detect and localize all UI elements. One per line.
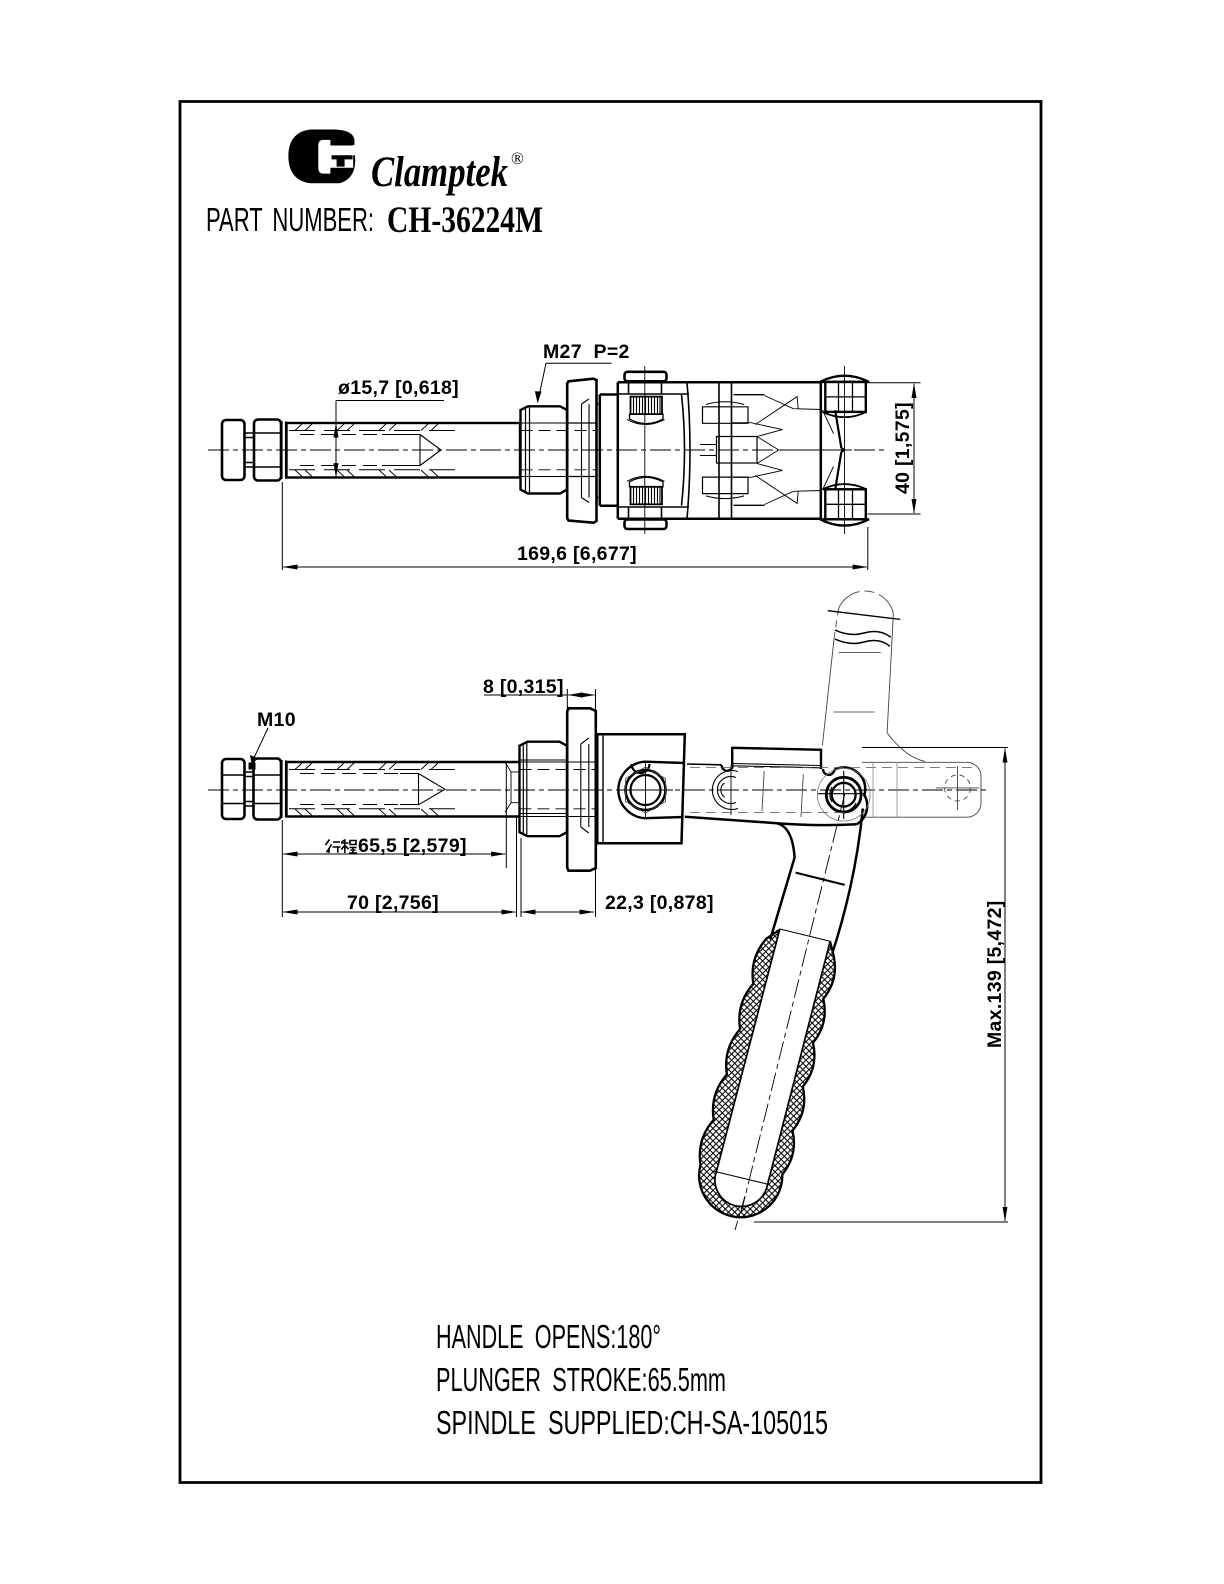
svg-text:Clamptek: Clamptek (371, 149, 508, 196)
svg-text:22,3 [0,878]: 22,3 [0,878] (605, 892, 714, 914)
svg-text:PART NUMBER:: PART NUMBER: (206, 201, 374, 238)
svg-text:®: ® (511, 149, 524, 168)
svg-text:CH-36224M: CH-36224M (387, 200, 543, 241)
svg-text:M27 P=2: M27 P=2 (543, 341, 630, 363)
svg-text:70 [2,756]: 70 [2,756] (347, 892, 439, 914)
svg-text:M10: M10 (257, 709, 296, 731)
svg-text:PLUNGER STROKE:65.5mm: PLUNGER STROKE:65.5mm (436, 1361, 726, 1398)
svg-text:65,5 [2,579]: 65,5 [2,579] (358, 835, 467, 857)
svg-text:8 [0,315]: 8 [0,315] (483, 676, 564, 698)
svg-text:Max.139 [5,472]: Max.139 [5,472] (984, 900, 1006, 1048)
svg-text:169,6 [6,677]: 169,6 [6,677] (517, 543, 637, 565)
svg-text:SPINDLE SUPPLIED:CH-SA-105015: SPINDLE SUPPLIED:CH-SA-105015 (436, 1404, 828, 1441)
svg-text:HANDLE OPENS:180°: HANDLE OPENS:180° (436, 1318, 661, 1355)
svg-text:40 [1,575]: 40 [1,575] (892, 402, 914, 494)
svg-text:ø15,7 [0,618]: ø15,7 [0,618] (338, 377, 459, 399)
